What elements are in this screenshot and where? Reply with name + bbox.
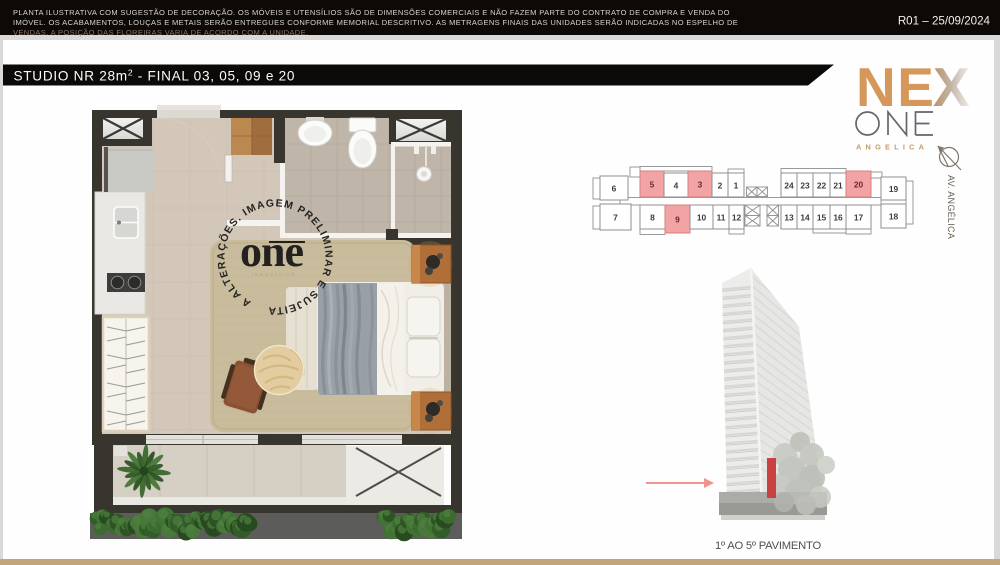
svg-text:23: 23 — [800, 180, 810, 190]
svg-text:INNOVATION: INNOVATION — [252, 272, 296, 277]
svg-text:6: 6 — [612, 183, 617, 193]
svg-text:R01 – 25/09/2024: R01 – 25/09/2024 — [898, 15, 991, 28]
svg-text:22: 22 — [817, 180, 827, 190]
svg-text:1º AO 5º PAVIMENTO: 1º AO 5º PAVIMENTO — [715, 540, 821, 552]
svg-text:16: 16 — [833, 212, 843, 222]
svg-text:21: 21 — [833, 180, 843, 190]
svg-text:one: one — [240, 227, 303, 276]
svg-text:4: 4 — [674, 180, 679, 190]
svg-text:20: 20 — [854, 179, 864, 189]
svg-text:2: 2 — [718, 180, 723, 190]
svg-text:24: 24 — [784, 180, 794, 190]
svg-text:PLANTA ILUSTRATIVA COM SUGESTÃ: PLANTA ILUSTRATIVA COM SUGESTÃO DE DECOR… — [13, 8, 730, 17]
svg-text:15: 15 — [817, 212, 827, 222]
svg-text:8: 8 — [650, 212, 655, 222]
svg-text:VENDAS. A POSIÇÃO DAS FLOREIRA: VENDAS. A POSIÇÃO DAS FLOREIRAS VARIA DE… — [13, 28, 308, 37]
svg-text:X: X — [933, 56, 970, 118]
svg-text:14: 14 — [800, 212, 810, 222]
svg-text:5: 5 — [650, 179, 655, 189]
svg-text:12: 12 — [732, 212, 742, 222]
svg-text:19: 19 — [889, 184, 899, 194]
svg-text:9: 9 — [675, 214, 680, 224]
svg-text:18: 18 — [889, 211, 899, 221]
svg-text:11: 11 — [717, 212, 726, 222]
svg-text:ANGELICA: ANGELICA — [856, 143, 928, 152]
svg-text:17: 17 — [854, 212, 864, 222]
svg-text:AV. ANGÉLICA: AV. ANGÉLICA — [946, 175, 956, 239]
svg-text:1: 1 — [734, 180, 739, 190]
svg-text:NE: NE — [856, 56, 935, 118]
svg-text:IMÓVEL. OS ACABAMENTOS, LOUÇAS: IMÓVEL. OS ACABAMENTOS, LOUÇAS E METAIS … — [13, 18, 738, 27]
svg-text:13: 13 — [784, 212, 794, 222]
svg-text:7: 7 — [613, 212, 618, 222]
svg-text:10: 10 — [697, 212, 707, 222]
svg-text:STUDIO NR 28m2 - FINAL 03, 05,: STUDIO NR 28m2 - FINAL 03, 05, 09 e 20 — [14, 68, 296, 84]
svg-text:3: 3 — [698, 179, 703, 189]
